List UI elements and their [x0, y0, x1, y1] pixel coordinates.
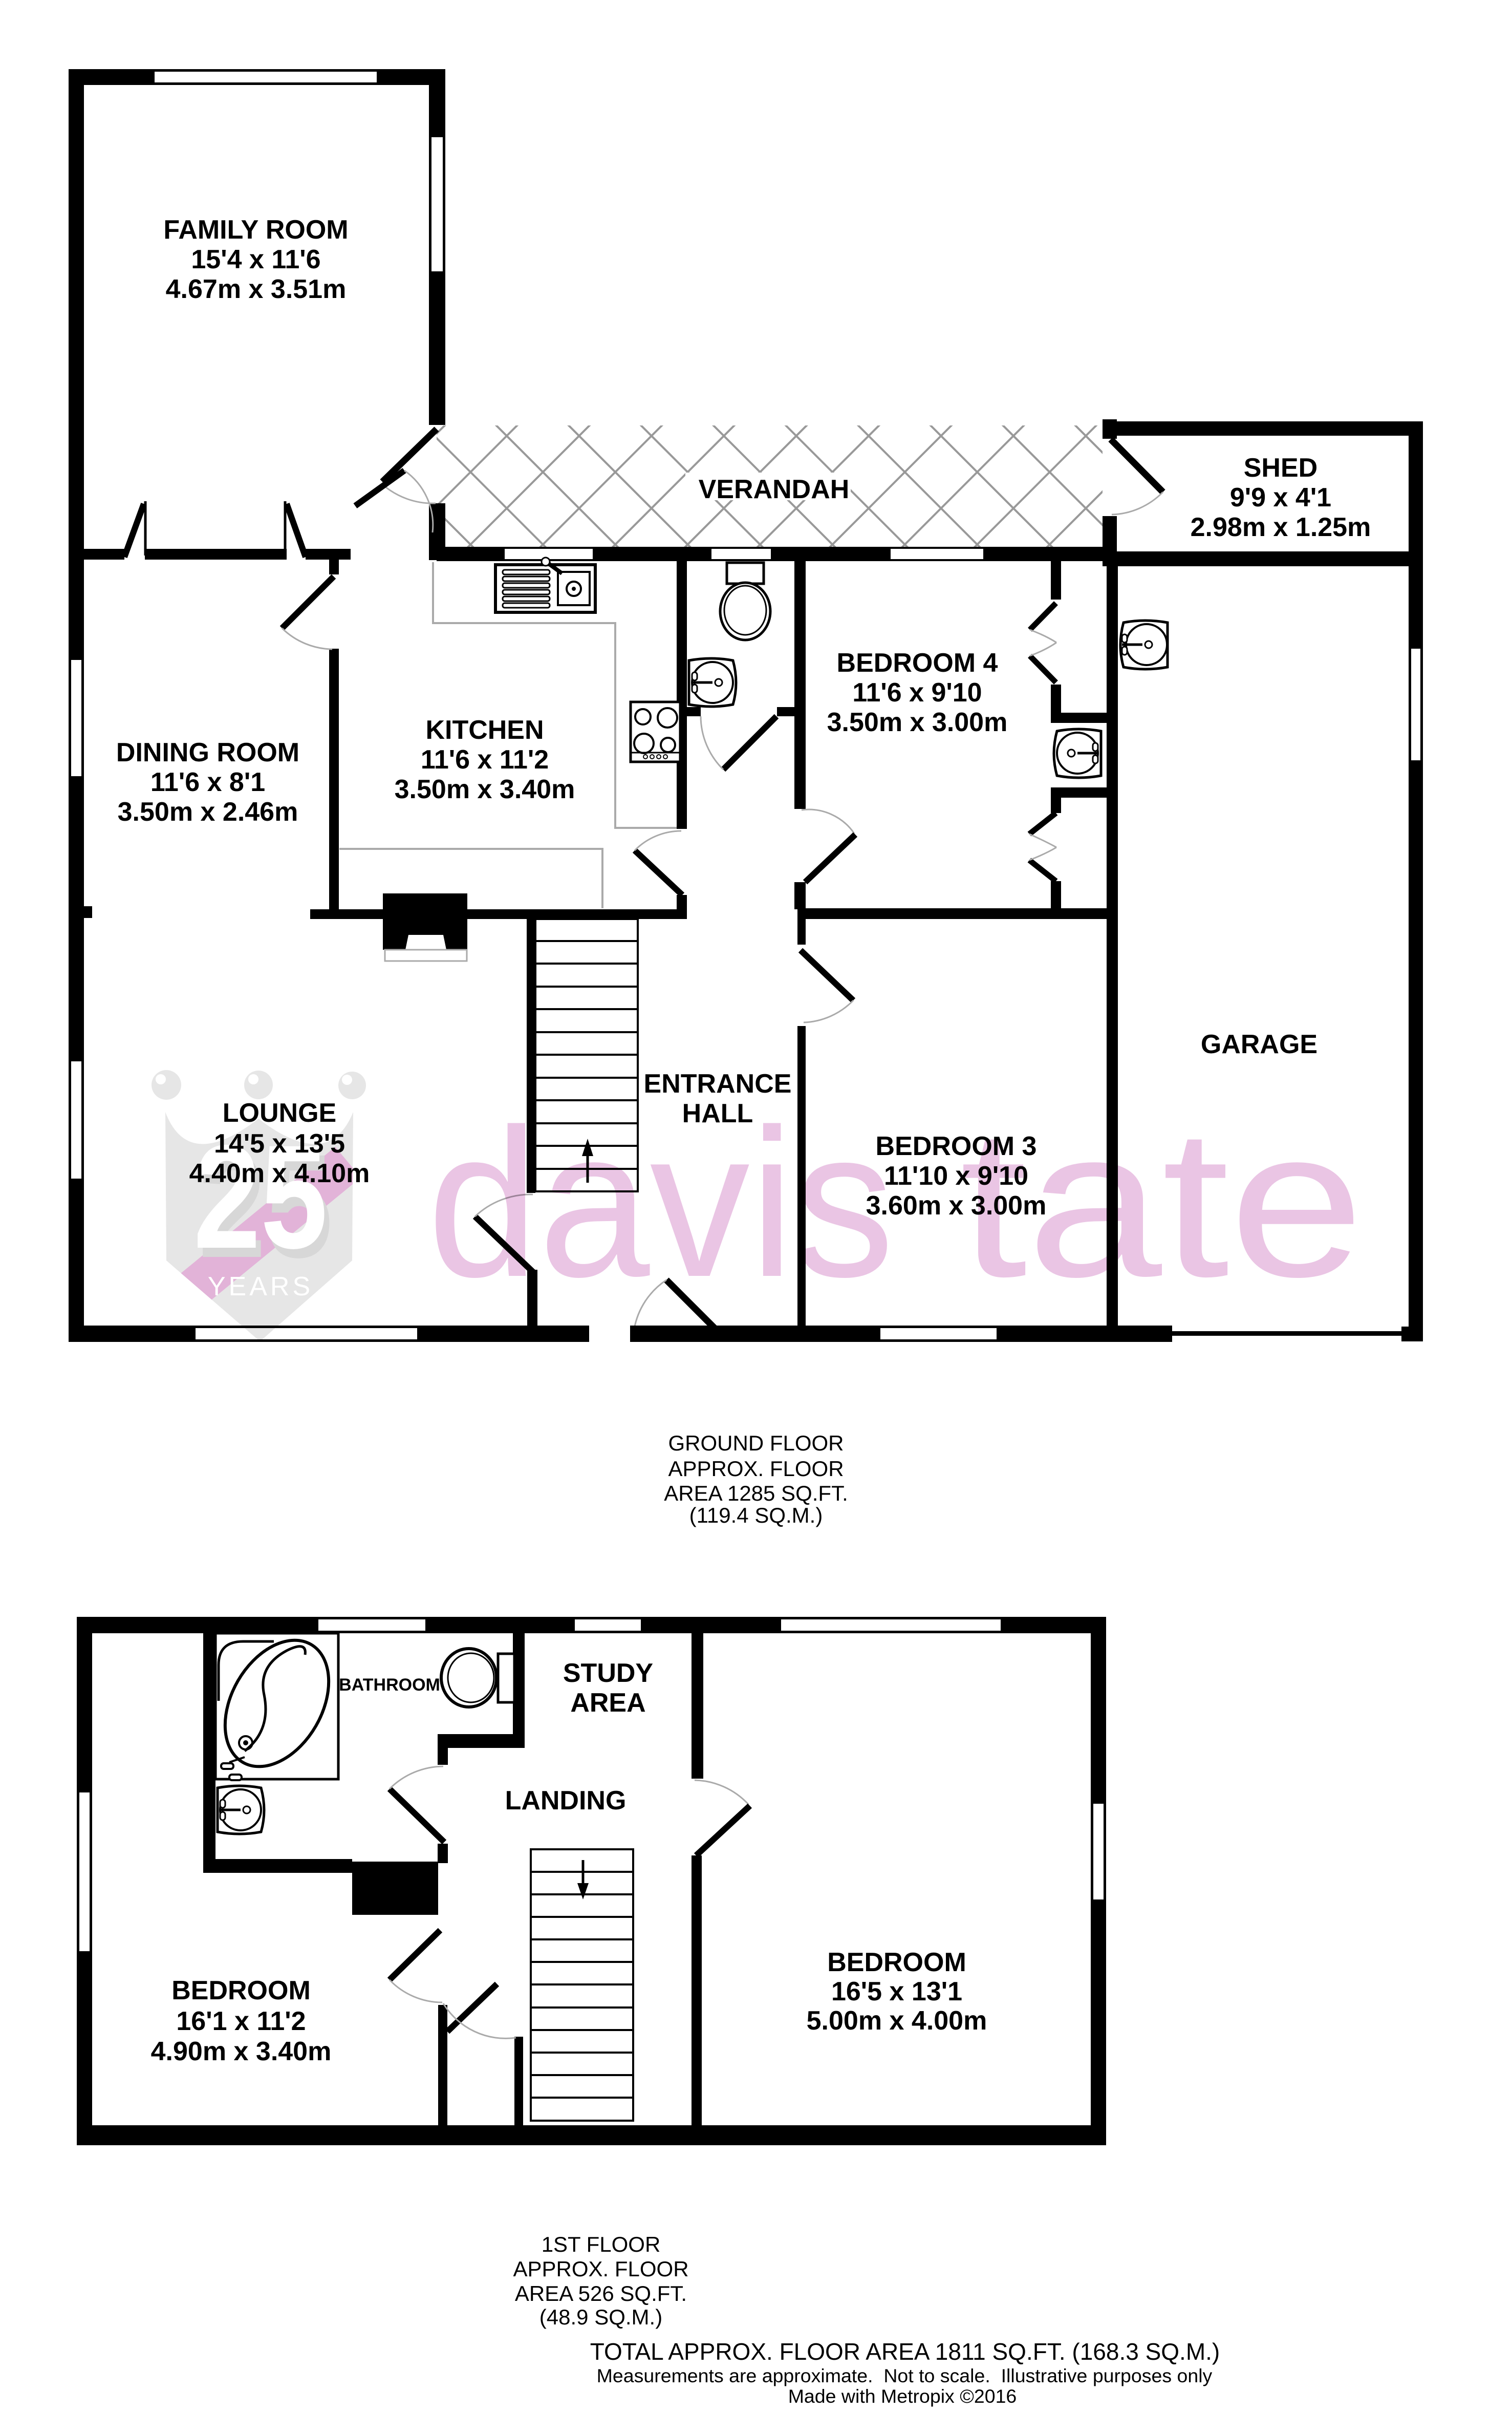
svg-text:BATHROOM: BATHROOM [339, 1675, 440, 1695]
svg-text:11'6 x 9'10: 11'6 x 9'10 [852, 678, 982, 708]
svg-text:BEDROOM: BEDROOM [171, 1976, 311, 2005]
svg-text:4.90m x 3.40m: 4.90m x 3.40m [151, 2037, 332, 2066]
svg-text:STUDY: STUDY [563, 1658, 653, 1688]
svg-text:15'4 x 11'6: 15'4 x 11'6 [191, 245, 320, 274]
svg-text:3.50m x 2.46m: 3.50m x 2.46m [118, 797, 298, 827]
svg-text:AREA 1285 SQ.FT.: AREA 1285 SQ.FT. [664, 1481, 848, 1505]
svg-text:DINING ROOM: DINING ROOM [116, 738, 299, 767]
svg-text:tate: tate [960, 1085, 1364, 1321]
svg-text:APPROX. FLOOR: APPROX. FLOOR [668, 1457, 844, 1481]
svg-text:11'6 x 11'2: 11'6 x 11'2 [421, 745, 549, 775]
svg-text:AREA: AREA [570, 1688, 645, 1718]
svg-text:davis: davis [427, 1085, 894, 1321]
svg-text:BEDROOM: BEDROOM [827, 1948, 966, 1977]
svg-text:AREA 526 SQ.FT.: AREA 526 SQ.FT. [515, 2281, 687, 2305]
svg-text:SHED: SHED [1244, 453, 1317, 483]
svg-text:FAMILY ROOM: FAMILY ROOM [163, 215, 348, 245]
svg-text:APPROX. FLOOR: APPROX. FLOOR [513, 2257, 688, 2281]
svg-text:5.00m x 4.00m: 5.00m x 4.00m [807, 2006, 987, 2036]
svg-text:GARAGE: GARAGE [1201, 1030, 1317, 1059]
svg-text:1ST FLOOR: 1ST FLOOR [542, 2232, 661, 2256]
svg-text:KITCHEN: KITCHEN [425, 715, 544, 745]
svg-text:(119.4 SQ.M.): (119.4 SQ.M.) [689, 1503, 823, 1527]
svg-text:GROUND FLOOR: GROUND FLOOR [668, 1431, 844, 1455]
svg-text:4.67m x 3.51m: 4.67m x 3.51m [166, 274, 347, 304]
svg-text:3.50m x 3.40m: 3.50m x 3.40m [395, 775, 575, 804]
svg-text:3.50m x 3.00m: 3.50m x 3.00m [827, 708, 1008, 737]
svg-text:BEDROOM 4: BEDROOM 4 [837, 648, 998, 678]
svg-text:9'9 x 4'1: 9'9 x 4'1 [1230, 483, 1331, 513]
svg-text:YEARS: YEARS [208, 1272, 313, 1301]
svg-text:16'5 x 13'1: 16'5 x 13'1 [831, 1977, 962, 2006]
svg-text:(48.9 SQ.M.): (48.9 SQ.M.) [539, 2305, 662, 2329]
svg-text:Measurements are approximate.: Measurements are approximate. Not to sca… [597, 2365, 1213, 2386]
svg-text:16'1 x 11'2: 16'1 x 11'2 [176, 2006, 306, 2036]
svg-text:LANDING: LANDING [505, 1786, 627, 1816]
svg-text:Made with Metropix ©2016: Made with Metropix ©2016 [788, 2385, 1017, 2407]
svg-text:11'6 x 8'1: 11'6 x 8'1 [150, 767, 265, 797]
svg-text:VERANDAH: VERANDAH [699, 475, 850, 504]
svg-text:TOTAL APPROX. FLOOR AREA 1811: TOTAL APPROX. FLOOR AREA 1811 SQ.FT. (16… [590, 2338, 1220, 2365]
svg-text:2.98m x 1.25m: 2.98m x 1.25m [1191, 513, 1371, 542]
svg-text:25: 25 [193, 1115, 328, 1279]
